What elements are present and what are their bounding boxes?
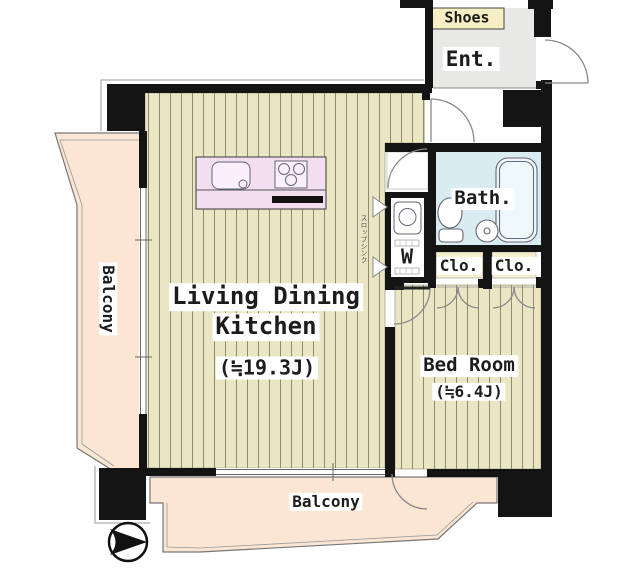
utility-note-label: スロップシンク <box>357 215 371 264</box>
floorplan: Shoes Ent. Bath. Clo. Clo. W Living Dini… <box>0 0 640 569</box>
washbasin-icon <box>476 220 498 242</box>
ldk-label-line1: Living Dining <box>169 283 363 311</box>
utility-nook-floor <box>387 152 428 189</box>
bath-label: Bath. <box>451 188 514 210</box>
kitchen-sink-icon <box>212 162 250 189</box>
ldk-label-line2: Kitchen <box>212 313 319 341</box>
bedroom-size-label: (≒6.4J) <box>432 383 505 401</box>
shoes-label: Shoes <box>441 9 492 26</box>
entrance-label: Ent. <box>443 47 500 71</box>
washing-machine-icon <box>394 202 421 234</box>
balcony-bottom-floor <box>150 477 497 552</box>
ldk-size-label: (≒19.3J) <box>216 357 318 380</box>
compass-north-arrow-icon <box>109 523 147 561</box>
balcony-bottom-label: Balcony <box>289 493 362 511</box>
ldk-floor <box>145 93 425 468</box>
washer-label: W <box>398 246 416 269</box>
closet-a-label: Clo. <box>437 257 482 275</box>
balcony-left-label: Balcony <box>99 262 117 335</box>
closet-b-label: Clo. <box>492 257 537 275</box>
bedroom-label: Bed Room <box>420 355 518 377</box>
kitchen-counter <box>196 157 326 209</box>
counter-dark-strip <box>272 196 323 203</box>
bedroom-floor <box>395 285 541 469</box>
entrance-door-arc <box>545 40 588 83</box>
